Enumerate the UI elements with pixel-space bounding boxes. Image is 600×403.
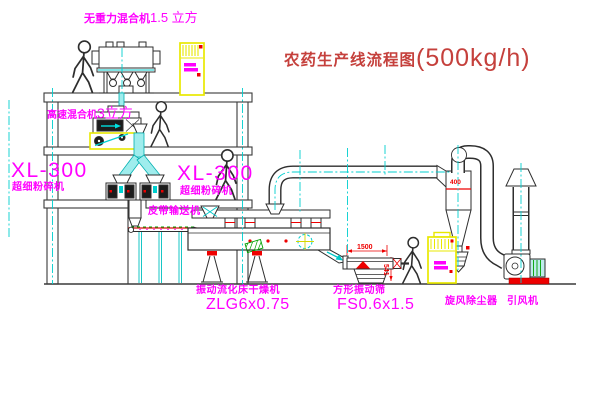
pulverizer-left-name: 超细粉碎机 (12, 183, 65, 193)
title-text: 农药生产线流程图 (284, 52, 416, 71)
fluid-bed-dryer (188, 204, 350, 282)
pulverizer-right-name: 超细粉碎机 (180, 187, 233, 197)
cyclone-label: 旋风除尘器 (445, 297, 498, 307)
person-figure-2 (151, 102, 169, 147)
sieve-height-dim: 541 (382, 264, 389, 276)
belt-conveyor-label: 皮带输送机 (148, 207, 201, 217)
dryer-name-label: 振动流化床干燥机 (196, 286, 280, 296)
indicator-light (199, 45, 203, 49)
gravity-mixer-label: 无重力混合机1.5 立方 (84, 10, 198, 26)
high-speed-mixer-label: 高速混合机3立方 (47, 106, 133, 122)
sieve-model-label: FS0.6x1.5 (337, 297, 414, 313)
pulverizer-left (106, 175, 136, 200)
diagram-title: 农药生产线流程图 (500kg/h) (284, 46, 531, 71)
belt-conveyor (128, 227, 197, 283)
high-speed-mixer-spec: 3立方 (97, 105, 133, 121)
vibrating-sieve (343, 245, 409, 283)
sieve-length-dim: 1500 (357, 244, 373, 251)
gravity-mixer-machine (92, 42, 160, 93)
pulverizer-right-model: XL-300 (177, 163, 254, 184)
control-cabinet-top (180, 43, 204, 95)
person-figure-4 (403, 238, 421, 284)
pulverizer-left-model: XL-300 (11, 160, 88, 181)
control-cabinet-ground (428, 233, 456, 284)
fan-base (509, 278, 549, 284)
gravity-mixer-name: 无重力混合机 (84, 13, 150, 25)
exhaust-duct (275, 172, 437, 208)
title-capacity: (500kg/h) (416, 46, 531, 71)
dryer-model-label: ZLG6x0.75 (206, 297, 290, 313)
cabinet-text-mark (434, 261, 446, 265)
cyclone-inlet-dim: 400 (450, 180, 461, 187)
pesticide-line-flow-diagram: 无重力混合机1.5 立方 农药生产线流程图 (500kg/h) 高速混合机3立方… (0, 0, 600, 403)
conveyor-legs (139, 232, 182, 283)
sieve-name-label: 方形振动筛 (333, 286, 386, 296)
discharge-duct (129, 200, 141, 226)
induced-draft-fan (504, 250, 549, 284)
gravity-mixer-spec: 1.5 立方 (150, 10, 198, 25)
indicator-light (451, 240, 454, 243)
pulverizer-right (140, 175, 170, 200)
fan-label: 引风机 (507, 297, 539, 307)
cabinet-text-mark (184, 63, 196, 67)
person-figure-1 (73, 41, 94, 92)
fan-motor (530, 259, 545, 277)
high-speed-mixer-name: 高速混合机 (47, 110, 97, 121)
